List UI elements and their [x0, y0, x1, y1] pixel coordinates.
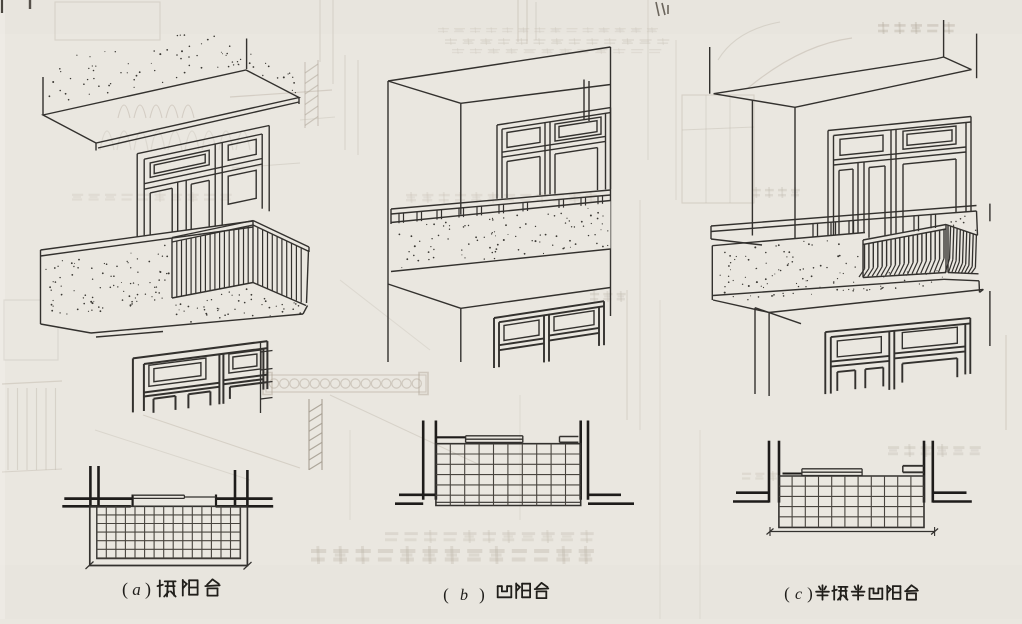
svg-text:a: a [132, 580, 141, 599]
svg-text:(: ( [443, 585, 449, 604]
svg-text:): ) [807, 584, 813, 603]
svg-text:c: c [795, 586, 802, 603]
svg-text:(: ( [122, 579, 128, 600]
svg-text:b: b [460, 587, 468, 604]
svg-text:(: ( [784, 584, 790, 603]
svg-text:): ) [479, 585, 485, 604]
svg-text:): ) [145, 579, 151, 600]
